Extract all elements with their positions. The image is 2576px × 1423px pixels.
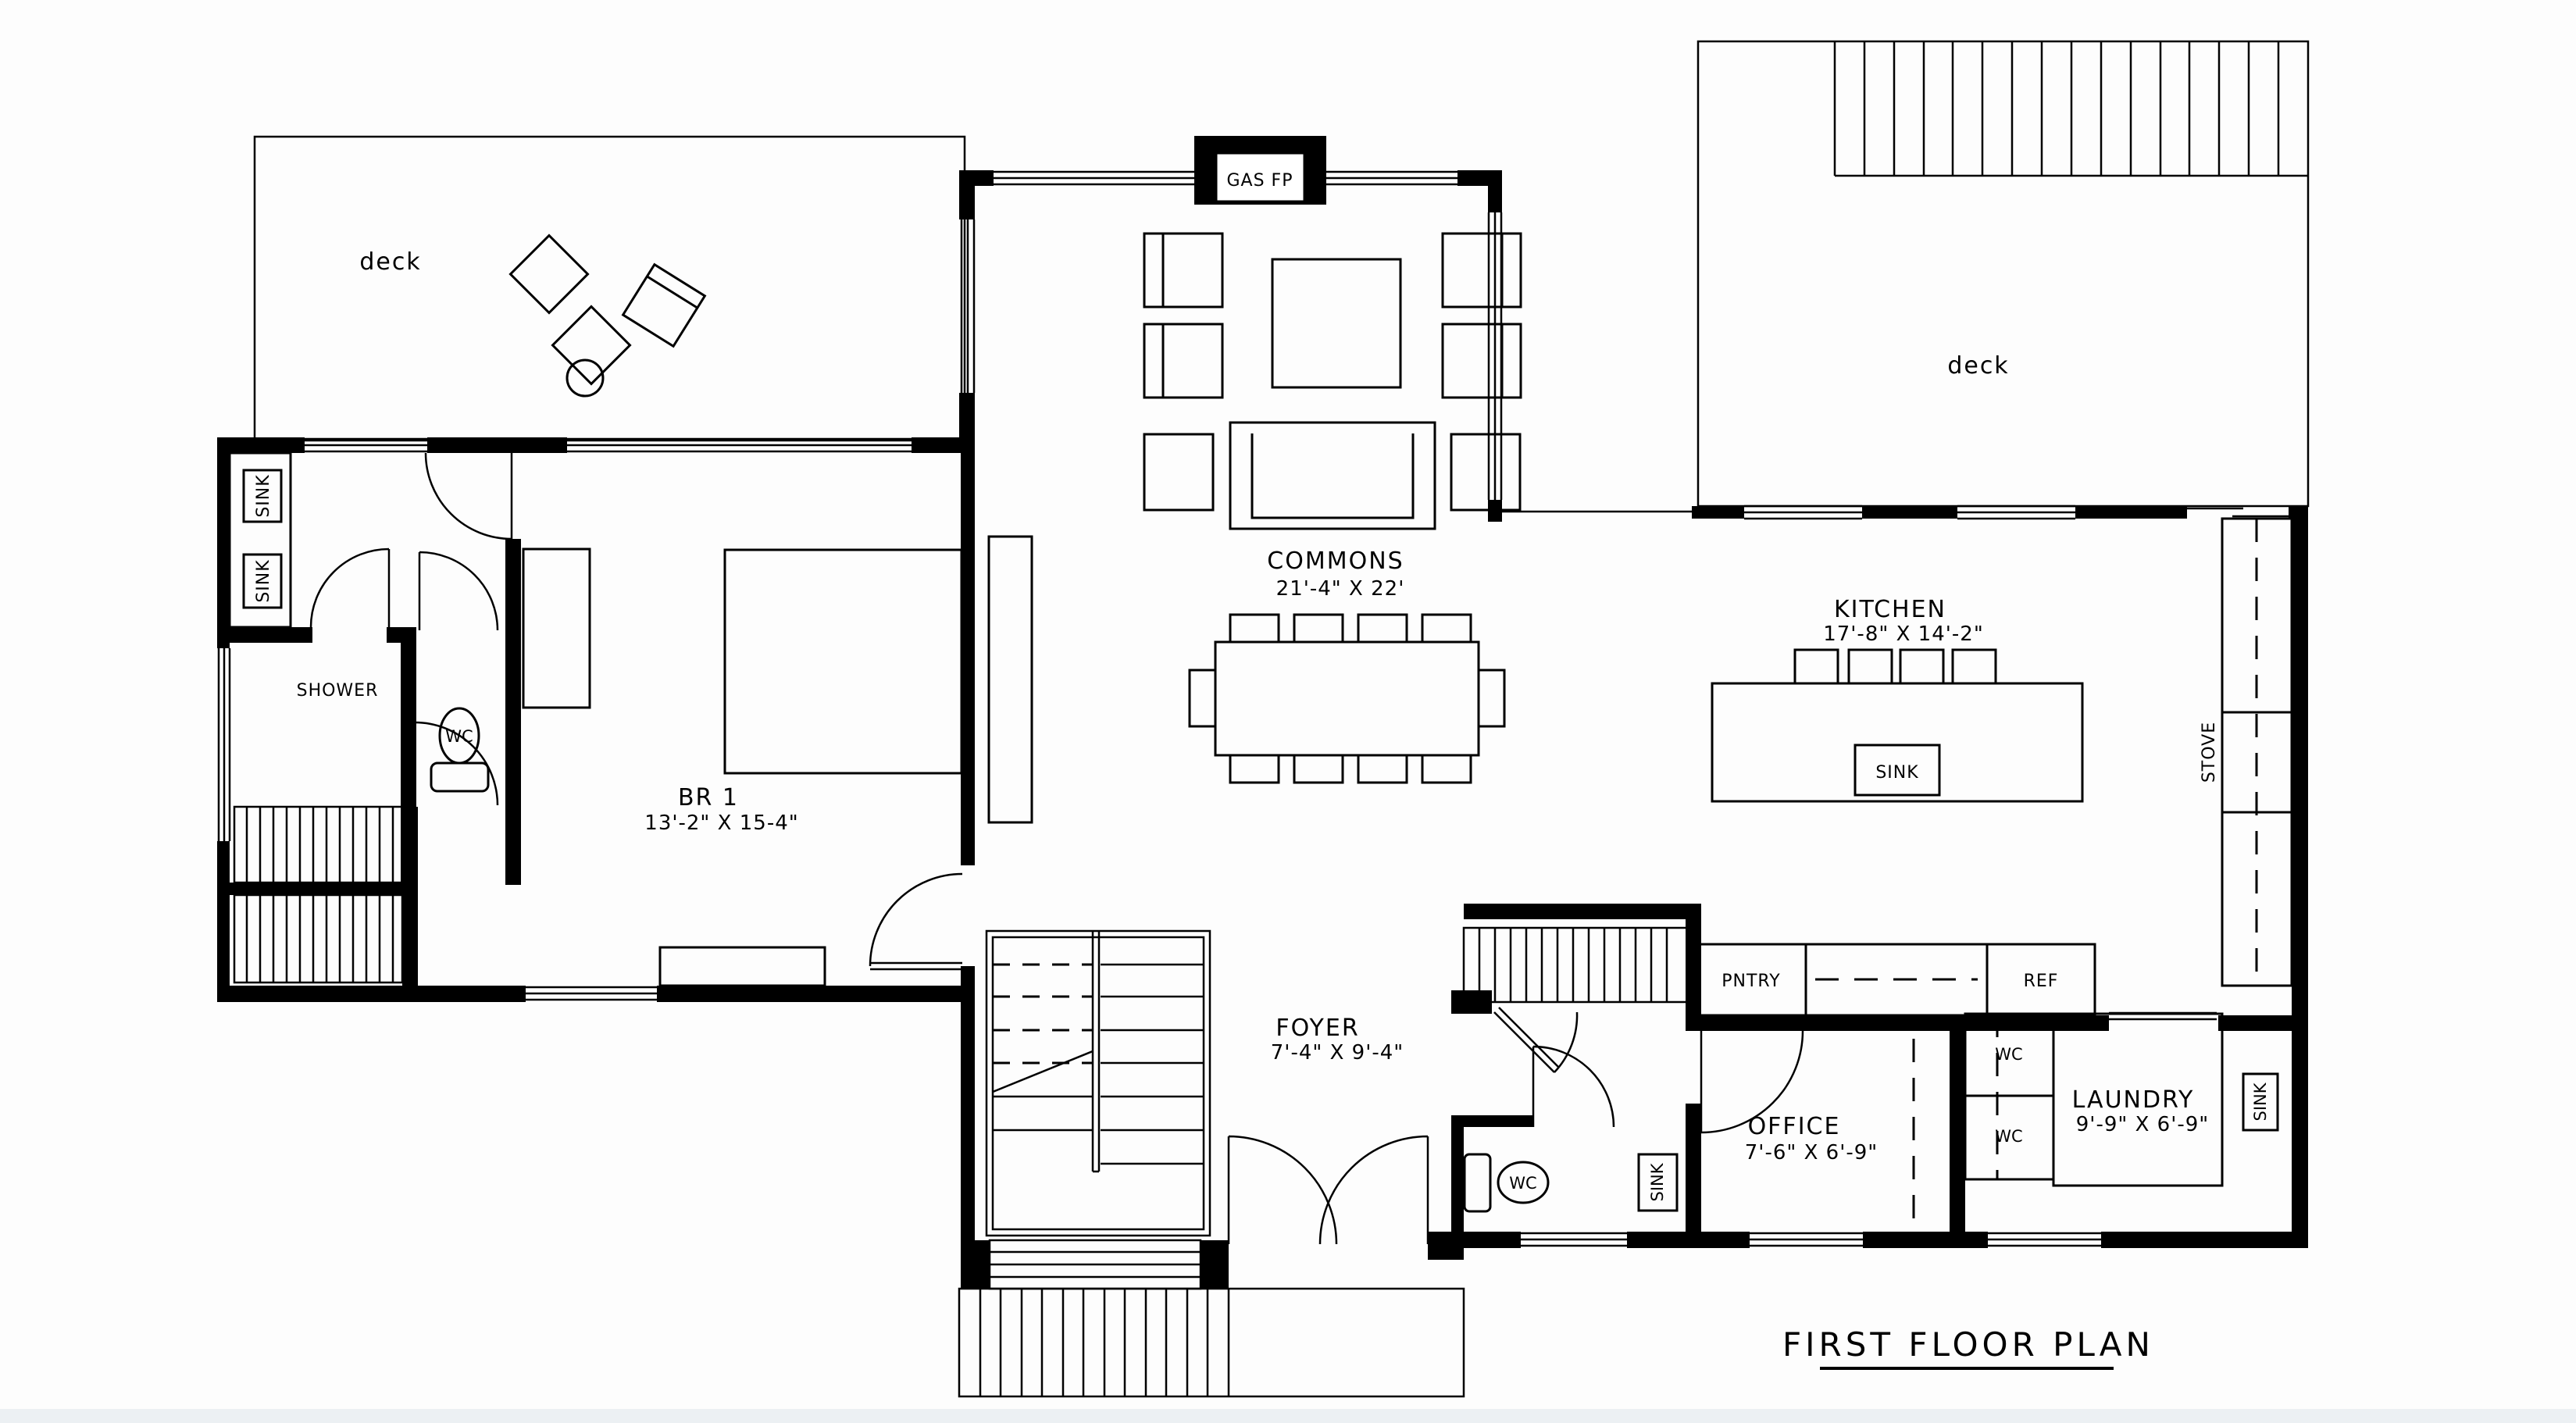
toilet-tank-icon	[431, 763, 488, 791]
deck-chair-icon	[511, 236, 705, 396]
stove-counter	[2222, 519, 2292, 986]
pantry-label: PNTRY	[1721, 972, 1780, 991]
kitchen-dims: 17'-8" X 14'-2"	[1823, 622, 1984, 646]
deck-right-label: deck	[1947, 352, 2009, 380]
coat-closet	[1464, 928, 1687, 1002]
foyer-dims: 7'-4" X 9'-4"	[1271, 1041, 1404, 1065]
commons-label: COMMONS	[1267, 547, 1404, 575]
floor-plan-canvas: deck deck GAS FP COMMONS 21'-4" X 22' KI…	[0, 0, 2576, 1423]
shower-label: SHOWER	[297, 681, 379, 701]
kitchen-label: KITCHEN	[1834, 596, 1946, 623]
office-dims: 7'-6" X 6'-9"	[1745, 1141, 1878, 1164]
deck-plank-hatch	[1835, 41, 2308, 176]
doors	[311, 453, 2217, 1244]
powder-wc-label: WC	[1509, 1174, 1536, 1193]
floor-plan-page: deck deck GAS FP COMMONS 21'-4" X 22' KI…	[0, 0, 2576, 1423]
deck-left	[255, 137, 965, 440]
dining-table	[1215, 642, 1479, 755]
commons-dims: 21'-4" X 22'	[1276, 577, 1405, 601]
laundry-sink-label: SINK	[2251, 1082, 2270, 1121]
sliding-door	[2187, 508, 2289, 516]
plan-title: FIRST FLOOR PLAN	[1782, 1325, 2154, 1364]
office-label: OFFICE	[1748, 1113, 1841, 1140]
sofa	[1230, 423, 1435, 529]
bedroom-furniture	[523, 537, 1032, 986]
stove-label: STOVE	[2200, 722, 2219, 783]
commons-furniture	[1144, 234, 1521, 783]
staircase	[987, 931, 1210, 1236]
page-edge-band	[0, 1409, 2576, 1423]
toilet-tank-icon	[1465, 1154, 1490, 1211]
br1-dims: 13'-2" X 15-4"	[644, 811, 798, 835]
vanity-sink-label-2: SINK	[254, 559, 273, 602]
deck-right	[1502, 41, 2308, 512]
washer-label: WC	[1995, 1045, 2022, 1064]
bath-wc-label: WC	[445, 727, 473, 746]
vanity-sink-label-1: SINK	[254, 474, 273, 517]
foyer-label: FOYER	[1276, 1015, 1359, 1042]
br1-label: BR 1	[678, 784, 739, 811]
wardrobe	[523, 549, 590, 708]
powder-fixtures	[1465, 1154, 1677, 1211]
dryer-label: WC	[1995, 1127, 2022, 1146]
bath-fixtures	[230, 453, 488, 983]
dresser	[660, 947, 825, 986]
dining-set	[1190, 615, 1504, 783]
deck-left-label: deck	[359, 248, 421, 276]
bed	[725, 550, 962, 773]
island	[1712, 683, 2082, 801]
island-sink-label: SINK	[1875, 763, 1918, 783]
gas-fireplace-label: GAS FP	[1227, 171, 1293, 191]
console	[989, 537, 1032, 822]
laundry-dims: 9'-9" X 6'-9"	[2076, 1113, 2210, 1136]
refrigerator-label: REF	[2024, 972, 2059, 991]
closet-hatch	[234, 807, 402, 983]
coffee-table	[1272, 259, 1400, 387]
exterior-walls	[217, 170, 2308, 1289]
side-table	[1451, 434, 1520, 510]
powder-sink-label: SINK	[1648, 1162, 1667, 1201]
side-table	[1144, 434, 1213, 510]
laundry-label: LAUNDRY	[2072, 1086, 2195, 1114]
